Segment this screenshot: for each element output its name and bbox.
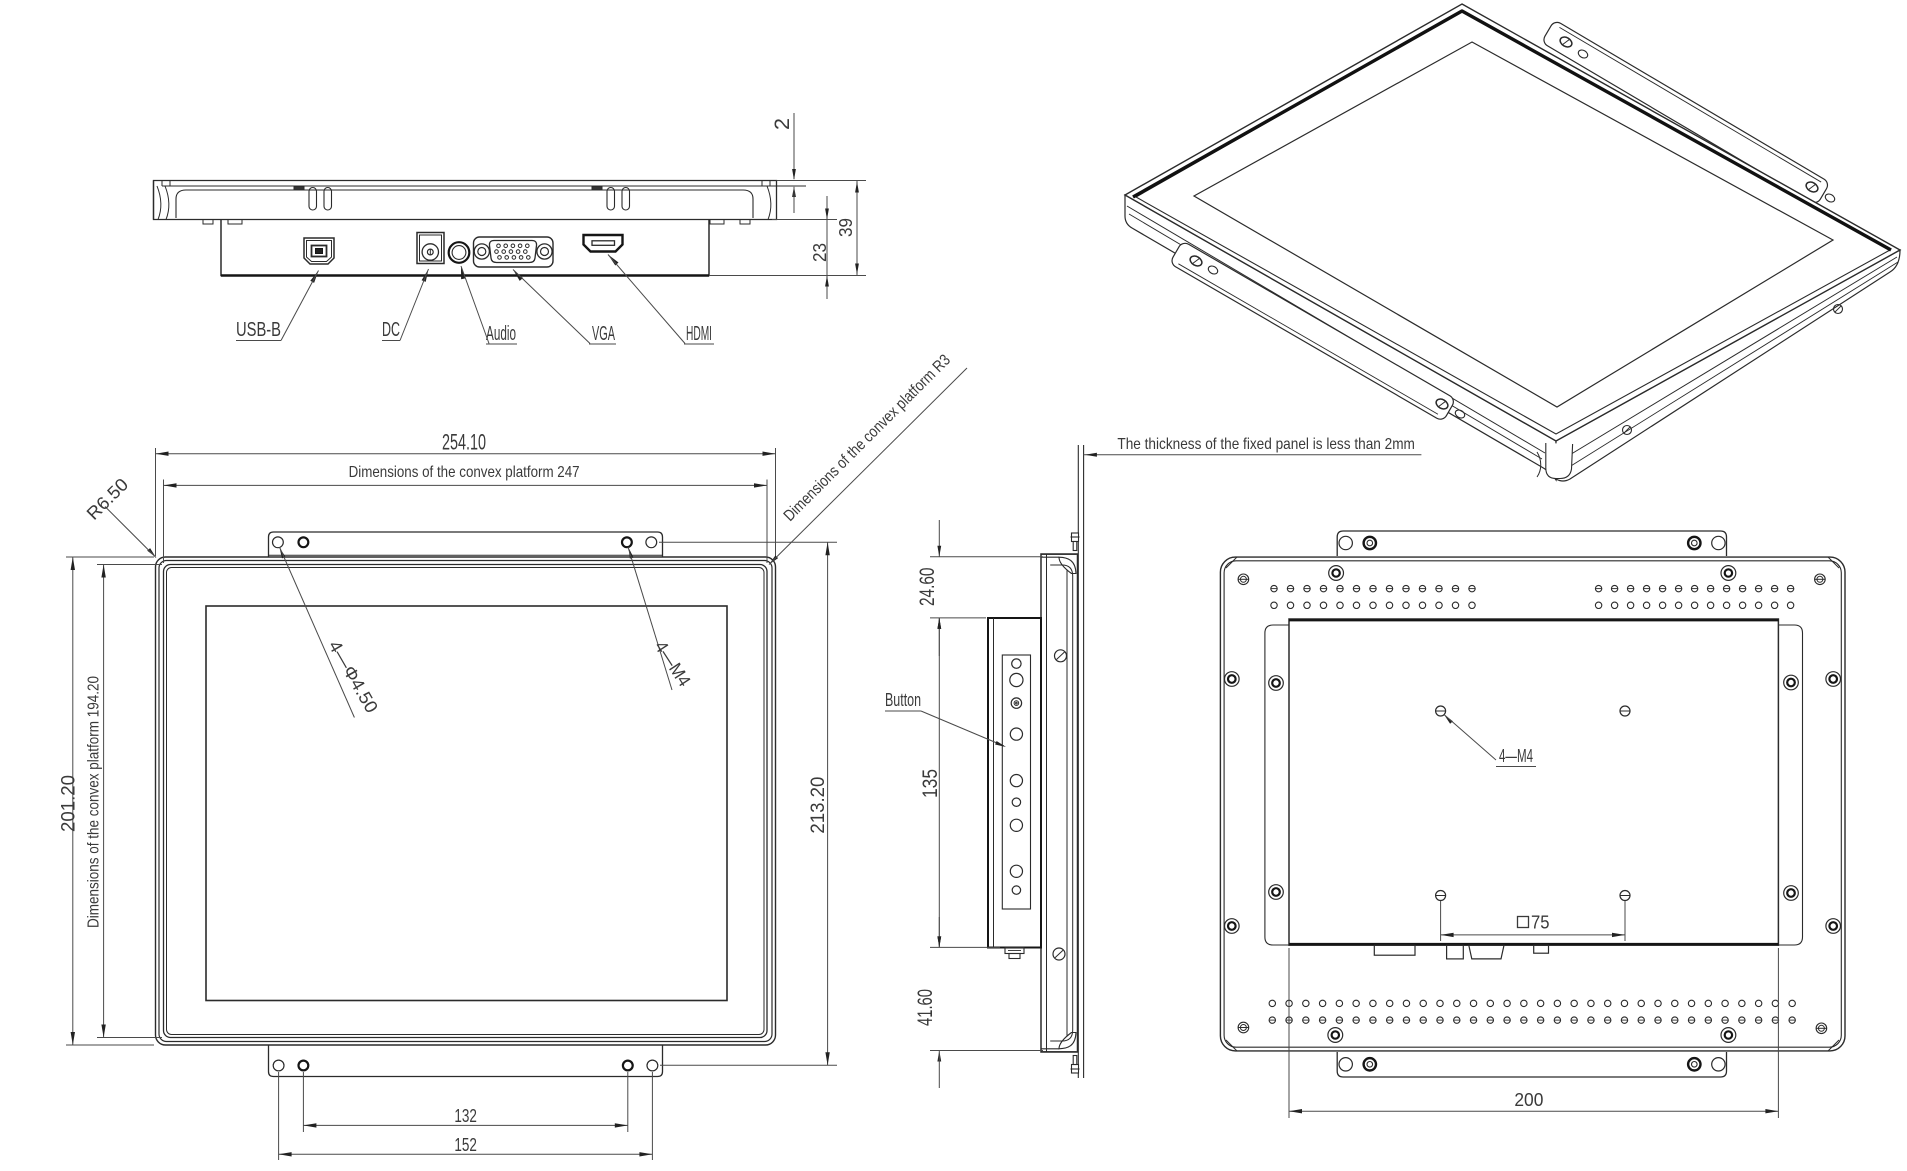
svg-text:135: 135: [919, 769, 942, 798]
svg-text:201.20: 201.20: [59, 775, 80, 832]
svg-text:DC: DC: [382, 319, 400, 341]
svg-text:4—M4: 4—M4: [651, 637, 695, 690]
svg-text:4—M4: 4—M4: [1499, 746, 1533, 766]
svg-text:Dimensions of the convex platf: Dimensions of the convex platform 194.20: [86, 676, 103, 928]
svg-text:75: 75: [1531, 913, 1550, 933]
svg-text:Button: Button: [885, 690, 921, 710]
svg-text:USB-B: USB-B: [236, 319, 281, 341]
svg-text:39: 39: [836, 218, 856, 237]
svg-text:41.60: 41.60: [914, 989, 937, 1026]
svg-text:VGA: VGA: [592, 323, 615, 345]
svg-text:152: 152: [454, 1135, 477, 1155]
svg-text:Audio: Audio: [486, 323, 516, 345]
svg-text:2: 2: [771, 118, 794, 130]
svg-text:254.10: 254.10: [442, 430, 486, 455]
svg-text:23: 23: [810, 243, 830, 262]
svg-text:4—Φ4.50: 4—Φ4.50: [325, 637, 382, 716]
svg-text:The thickness of the fixed pan: The thickness of the fixed panel is less…: [1117, 436, 1415, 453]
svg-text:HDMI: HDMI: [686, 323, 712, 345]
svg-text:213.20: 213.20: [808, 777, 829, 834]
svg-text:132: 132: [454, 1106, 477, 1126]
svg-text:24.60: 24.60: [916, 568, 939, 607]
svg-text:Dimensions of the convex platf: Dimensions of the convex platform 247: [349, 464, 580, 481]
svg-text:R6.50: R6.50: [83, 474, 132, 523]
svg-text:200: 200: [1514, 1090, 1543, 1110]
svg-text:Dimensions of the convex platf: Dimensions of the convex platform R3: [781, 352, 954, 525]
